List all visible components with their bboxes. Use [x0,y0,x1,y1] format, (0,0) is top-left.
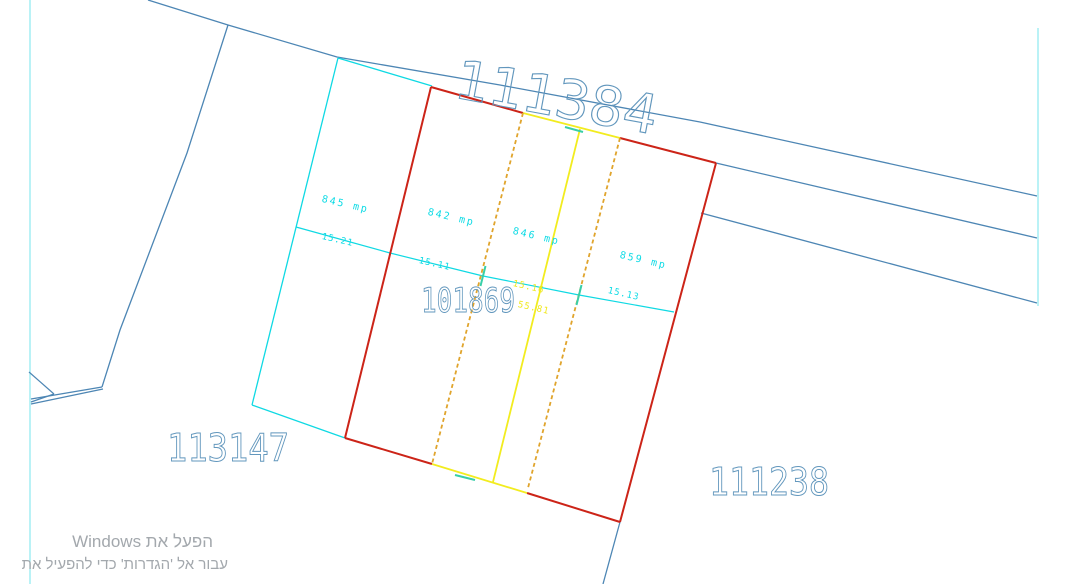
red-right-edge [620,163,716,522]
boundary-bottom-south [603,522,620,584]
cyan-parcel-top-edge [338,58,432,86]
parcel-number-right: 111238 [709,460,829,504]
windows-activation-watermark-subtitle: עבור אל 'הגדרות' כדי להפעיל את [22,556,228,573]
boundary-west-steep [102,25,228,387]
yellow-bottom-segment [432,464,527,493]
parcel-number-road: 111384 [450,48,663,147]
boundary-west-spur-lower [31,389,103,404]
west-triangle-edge-a [29,372,54,394]
cad-parcel-map: 111384 101869 113147 111238 845 mp 842 m… [0,0,1067,584]
road-south-edge [716,163,1037,238]
red-bottom-edge-right [527,493,620,522]
windows-activation-watermark-title: הפעל את Windows [72,532,213,552]
parcel-number-left: 113147 [167,426,289,470]
red-bottom-edge-left [345,438,432,464]
parcel-number-center: 101869 [421,281,515,321]
